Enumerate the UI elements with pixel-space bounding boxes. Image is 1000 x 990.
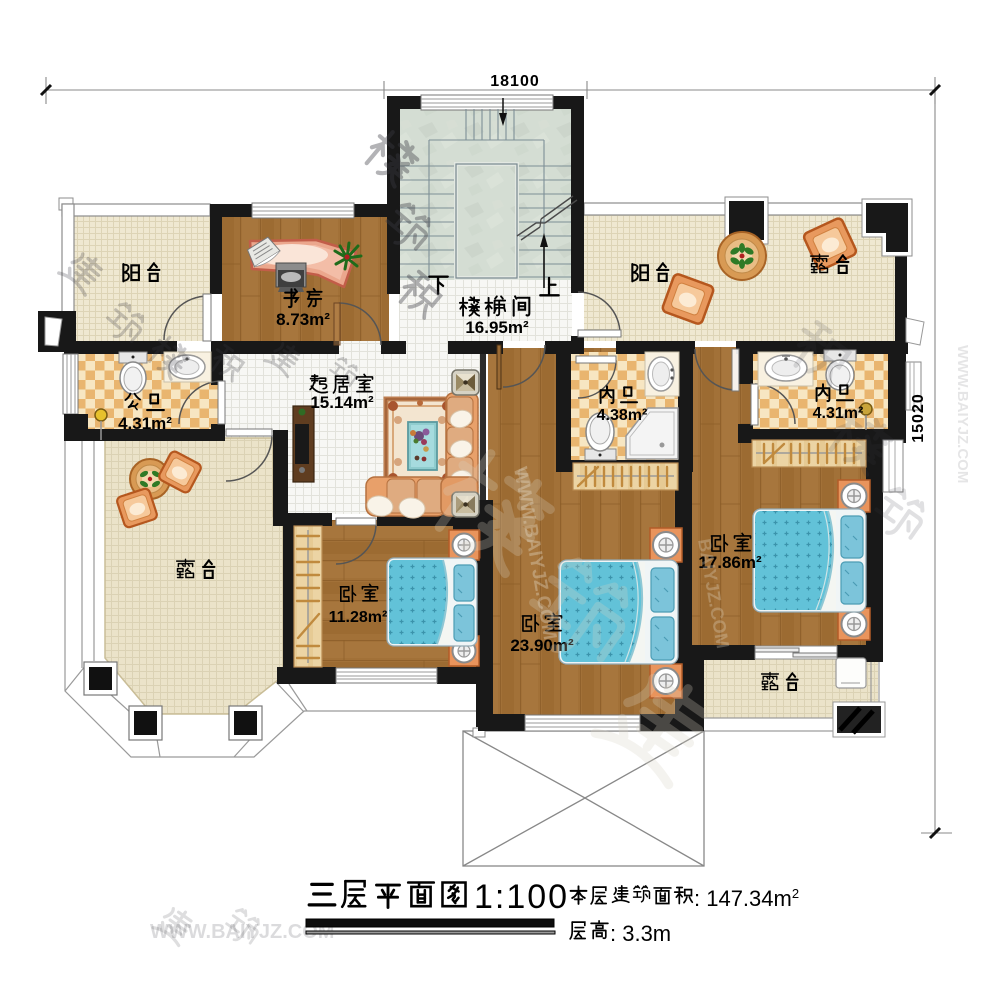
svg-text:: 147.34m2: : 147.34m2 [694, 886, 799, 911]
svg-text:11.28m²: 11.28m² [329, 609, 388, 626]
svg-text:4.31m²: 4.31m² [118, 414, 172, 433]
svg-text:: 3.3m: : 3.3m [610, 921, 671, 946]
svg-text:WWW.BAIYJZ.COM: WWW.BAIYJZ.COM [954, 345, 971, 483]
svg-text:1:100: 1:100 [474, 878, 569, 916]
svg-text:15.14m²: 15.14m² [310, 393, 374, 412]
svg-text:16.95m²: 16.95m² [465, 318, 529, 337]
svg-text:4.38m²: 4.38m² [597, 407, 648, 424]
svg-text:15020: 15020 [910, 393, 927, 443]
svg-text:8.73m²: 8.73m² [276, 310, 330, 329]
svg-text:18100: 18100 [490, 73, 540, 90]
